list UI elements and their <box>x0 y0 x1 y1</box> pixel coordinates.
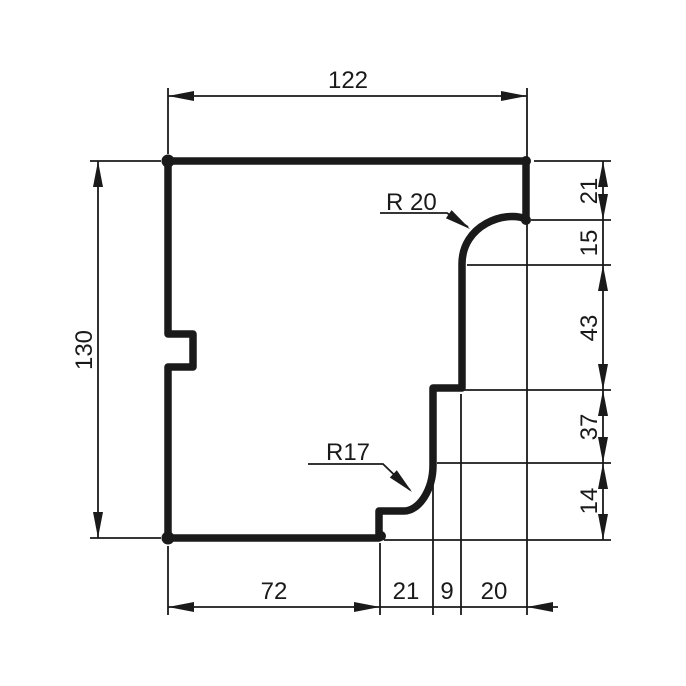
dimension-bottom-chain: 72 21 9 20 <box>168 224 558 615</box>
dimension-left: 130 <box>71 161 161 538</box>
corner-dot-bottom-left <box>162 532 175 545</box>
dim-label-bottom-20: 20 <box>481 578 508 605</box>
arrowhead-left <box>168 602 194 612</box>
dim-label-right-21: 21 <box>576 178 603 205</box>
corner-dot-r20-start <box>521 215 531 225</box>
arrowhead-up <box>93 161 103 187</box>
arrowhead-down <box>93 512 103 538</box>
arrowhead-left <box>168 91 194 101</box>
arrowhead-up <box>598 265 608 291</box>
arrowhead-right <box>354 602 380 612</box>
profile-path <box>168 161 526 538</box>
dim-label-right-37: 37 <box>576 414 603 441</box>
dim-label-top: 122 <box>328 67 368 94</box>
corner-dot-top-left <box>162 155 175 168</box>
leader-arrowhead <box>446 210 470 229</box>
radius-callout-r17: R17 <box>308 439 412 492</box>
arrowhead-down <box>598 514 608 540</box>
dim-label-right-43: 43 <box>576 315 603 342</box>
dim-label-left: 130 <box>71 330 98 370</box>
arrowhead-left-outside <box>527 602 553 612</box>
arrowhead-down <box>598 364 608 390</box>
radius-label-r17: R17 <box>326 439 370 466</box>
dim-label-right-14: 14 <box>576 488 603 515</box>
arrowhead-right <box>501 91 527 101</box>
dim-label-bottom-21: 21 <box>393 578 420 605</box>
dim-label-bottom-72: 72 <box>261 578 288 605</box>
arrowhead-up <box>598 390 608 416</box>
radius-callout-r20: R 20 <box>380 189 470 229</box>
corner-dot-top-right <box>521 156 531 166</box>
radius-label-r20: R 20 <box>386 189 437 216</box>
dimension-top: 122 <box>168 67 527 157</box>
technical-drawing: 122 130 21 15 43 37 14 <box>0 0 686 686</box>
dim-label-right-15: 15 <box>576 230 603 257</box>
profile-outline <box>162 155 532 545</box>
arrowhead-up <box>598 463 608 489</box>
dim-label-bottom-9: 9 <box>440 578 453 605</box>
